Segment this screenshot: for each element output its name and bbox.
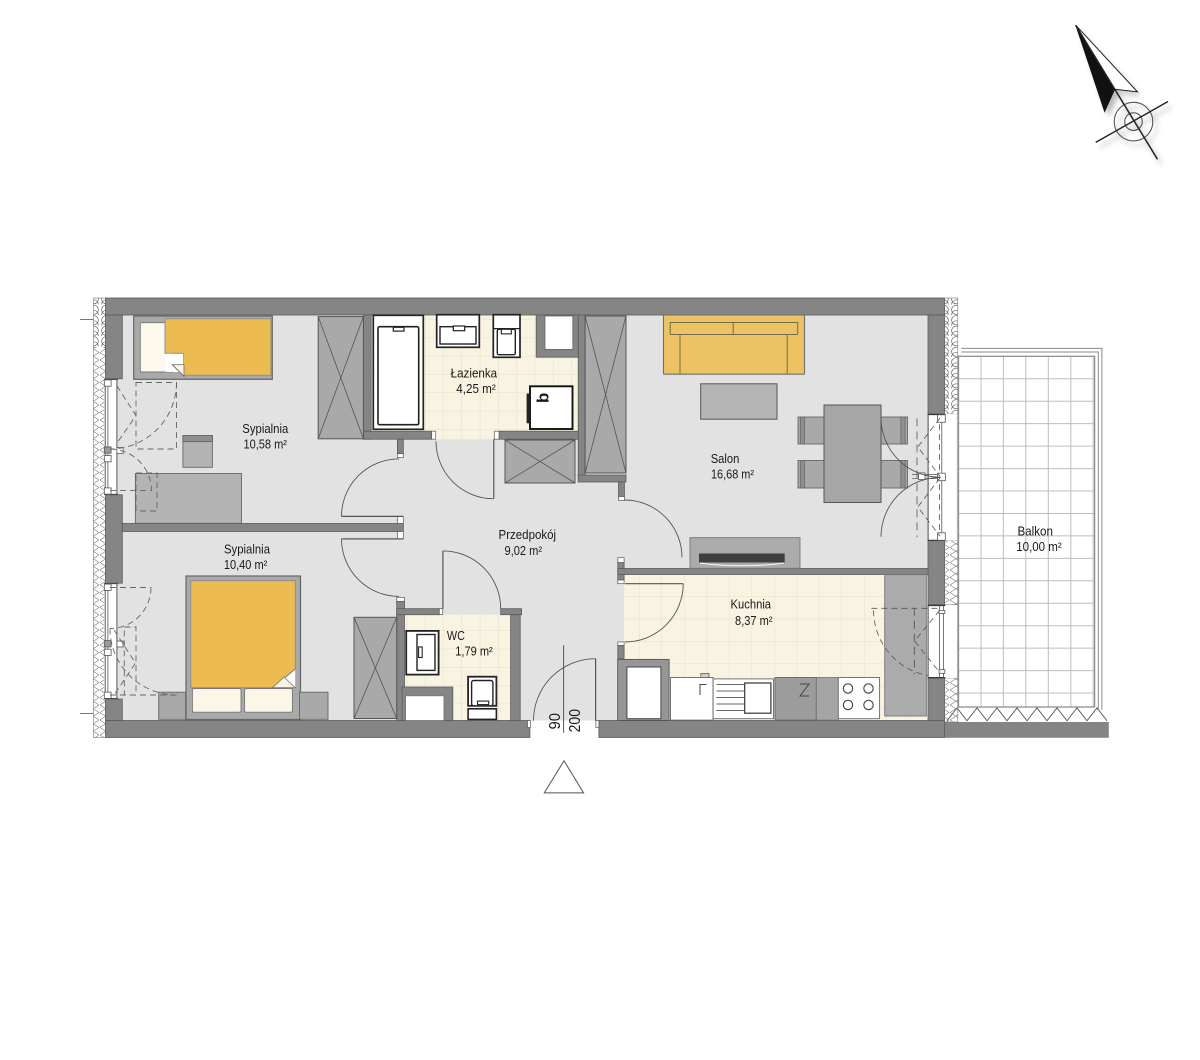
- svg-text:10,40 m²: 10,40 m²: [224, 557, 268, 572]
- svg-text:Sypialnia: Sypialnia: [242, 421, 289, 436]
- svg-text:b: b: [534, 393, 553, 403]
- svg-text:Kuchnia: Kuchnia: [731, 597, 772, 612]
- svg-text:90: 90: [547, 713, 564, 730]
- svg-text:16,68 m²: 16,68 m²: [711, 467, 755, 482]
- svg-text:Balkon: Balkon: [1017, 524, 1053, 539]
- svg-text:Sypialnia: Sypialnia: [224, 541, 271, 556]
- svg-text:9,02 m²: 9,02 m²: [505, 543, 543, 558]
- svg-text:10,58 m²: 10,58 m²: [243, 437, 287, 452]
- svg-text:200: 200: [567, 709, 584, 732]
- svg-text:1,79 m²: 1,79 m²: [455, 644, 493, 659]
- svg-text:Przedpokój: Przedpokój: [499, 527, 557, 542]
- svg-text:Łazienka: Łazienka: [451, 366, 498, 381]
- svg-text:WC: WC: [447, 628, 465, 643]
- svg-text:Salon: Salon: [711, 451, 740, 466]
- svg-text:4,25 m²: 4,25 m²: [456, 381, 496, 396]
- svg-text:8,37 m²: 8,37 m²: [735, 613, 773, 628]
- svg-text:10,00 m²: 10,00 m²: [1016, 539, 1062, 554]
